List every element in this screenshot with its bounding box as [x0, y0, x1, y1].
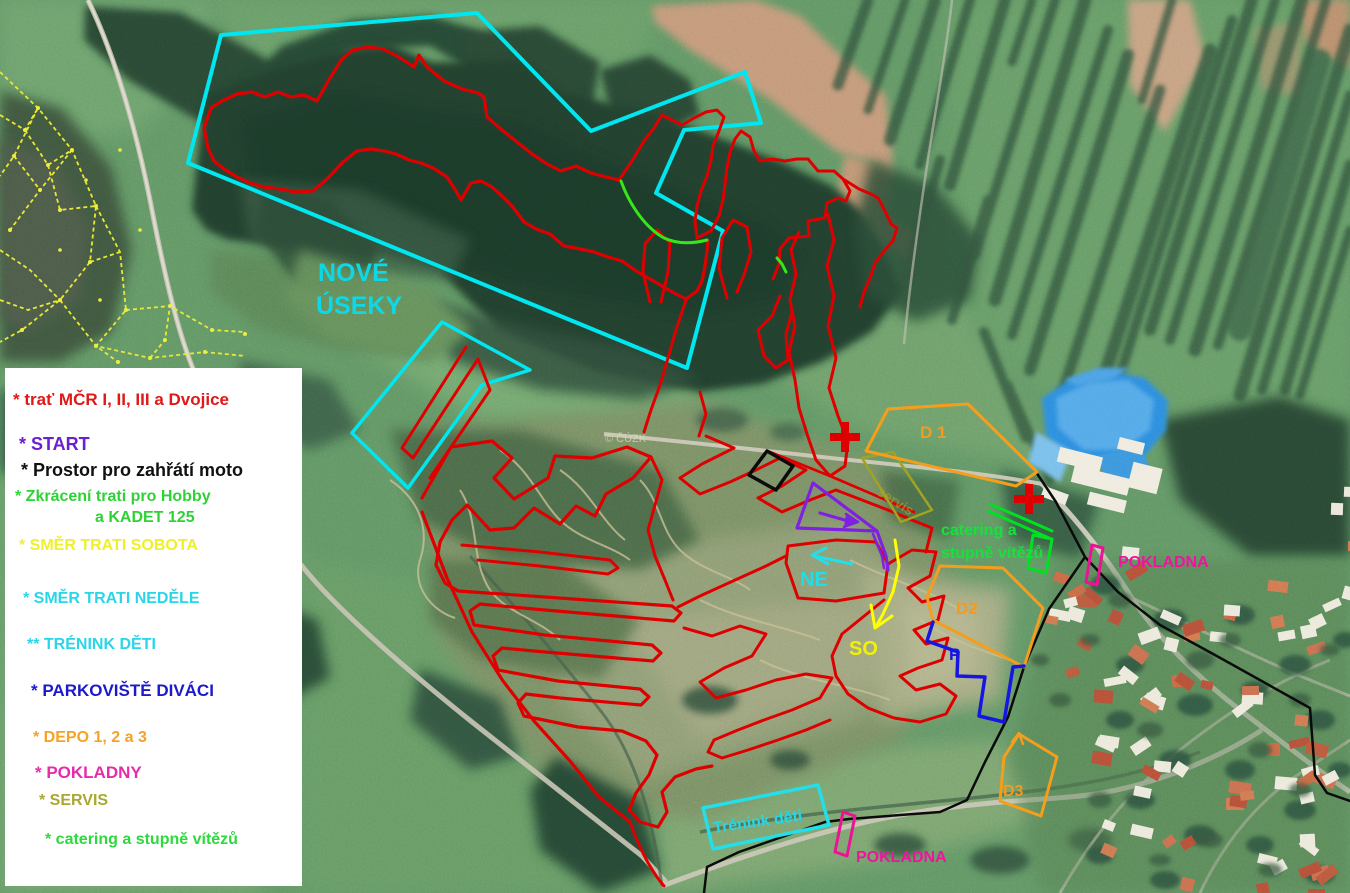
svg-text:ÚSEKY: ÚSEKY	[316, 290, 402, 320]
svg-text:POKLADNA: POKLADNA	[856, 849, 947, 866]
svg-text:P: P	[949, 645, 960, 664]
svg-text:POKLADNA: POKLADNA	[1118, 554, 1209, 571]
svg-text:© ČÚZK: © ČÚZK	[605, 432, 647, 445]
svg-text:SO: SO	[849, 638, 878, 660]
svg-text:D 1: D 1	[920, 423, 946, 442]
svg-text:catering a: catering a	[941, 522, 1017, 539]
svg-text:stupně vítězů: stupně vítězů	[941, 545, 1043, 562]
svg-text:D3: D3	[1003, 783, 1024, 800]
svg-text:NE: NE	[800, 569, 828, 591]
svg-text:D2: D2	[956, 599, 978, 618]
svg-text:NOVÉ: NOVÉ	[318, 258, 389, 287]
